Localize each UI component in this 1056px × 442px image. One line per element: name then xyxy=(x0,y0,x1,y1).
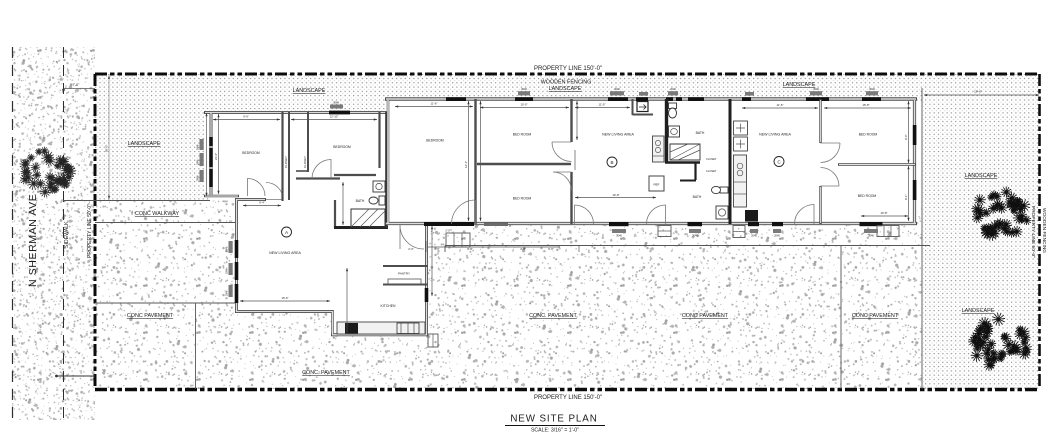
svg-text:BEDROOM: BEDROOM xyxy=(242,151,260,155)
svg-text:BEDROOM: BEDROOM xyxy=(333,145,351,149)
svg-text:2040: 2040 xyxy=(670,87,676,91)
svg-text:LANDSCAPE: LANDSCAPE xyxy=(293,88,326,94)
svg-text:3046: 3046 xyxy=(197,144,200,150)
svg-text:3046: 3046 xyxy=(226,290,229,296)
svg-text:6'-4": 6'-4" xyxy=(259,201,265,205)
svg-text:7'-0": 7'-0" xyxy=(73,83,81,87)
svg-text:CONC WALKWAY: CONC WALKWAY xyxy=(135,211,180,217)
svg-text:CONC PAVEMENT: CONC PAVEMENT xyxy=(682,313,729,319)
svg-text:LANDSCAPE: LANDSCAPE xyxy=(965,173,998,179)
svg-text:16'-8": 16'-8" xyxy=(880,211,887,215)
svg-text:3046: 3046 xyxy=(692,234,698,238)
svg-text:BATH: BATH xyxy=(356,199,365,203)
svg-text:11'-5": 11'-5" xyxy=(777,103,784,107)
svg-text:3046: 3046 xyxy=(869,87,875,91)
svg-text:2'-0": 2'-0" xyxy=(445,229,450,233)
svg-text:CONC. PAVEMENT: CONC. PAVEMENT xyxy=(302,370,350,376)
svg-text:NEW LIVING AREA: NEW LIVING AREA xyxy=(269,251,301,255)
svg-text:PROPERTY LINE 50'-0": PROPERTY LINE 50'-0" xyxy=(1030,206,1036,258)
svg-text:11'-6": 11'-6" xyxy=(431,102,438,106)
svg-text:11'-5": 11'-5" xyxy=(599,103,606,107)
svg-text:CONC PAVEMENT: CONC PAVEMENT xyxy=(127,313,174,319)
svg-text:21'-6": 21'-6" xyxy=(214,153,218,160)
svg-text:WOODEN FENCING: WOODEN FENCING xyxy=(1041,208,1047,253)
svg-text:3046: 3046 xyxy=(197,159,200,165)
svg-text:3046: 3046 xyxy=(614,87,620,91)
svg-text:9'-0": 9'-0" xyxy=(904,134,908,140)
svg-text:BED ROOM: BED ROOM xyxy=(513,133,532,137)
svg-text:N SHERMAN AVE: N SHERMAN AVE xyxy=(27,194,39,287)
svg-text:10'-0": 10'-0" xyxy=(520,103,527,107)
svg-text:LANDSCAPE: LANDSCAPE xyxy=(783,82,816,88)
svg-text:LANDSCAPE: LANDSCAPE xyxy=(549,86,582,92)
svg-text:15'-8": 15'-8" xyxy=(862,103,869,107)
svg-text:BED ROOM: BED ROOM xyxy=(513,197,532,201)
svg-text:2040: 2040 xyxy=(751,234,757,238)
svg-text:3046: 3046 xyxy=(616,234,622,238)
svg-text:3046: 3046 xyxy=(226,246,229,252)
svg-text:2'-0": 2'-0" xyxy=(408,247,414,251)
svg-text:SCALE: 3/16" = 1'-0": SCALE: 3/16" = 1'-0" xyxy=(531,428,579,434)
svg-text:19'-6": 19'-6" xyxy=(974,90,982,94)
svg-text:NEW LIVING AREA: NEW LIVING AREA xyxy=(602,133,634,137)
svg-text:5'-6": 5'-6" xyxy=(548,247,554,251)
svg-text:9'-1": 9'-1" xyxy=(904,194,908,200)
svg-text:LANDSCAPE: LANDSCAPE xyxy=(128,141,161,147)
svg-text:BATH: BATH xyxy=(696,131,705,135)
svg-text:3'-0": 3'-0" xyxy=(520,247,526,251)
svg-text:NEW LIVING AREA: NEW LIVING AREA xyxy=(759,133,791,137)
svg-text:3046: 3046 xyxy=(226,268,229,274)
svg-text:SIDEWALK: SIDEWALK xyxy=(64,221,70,248)
svg-text:PROPERTY LINE 150'-0": PROPERTY LINE 150'-0" xyxy=(534,66,602,72)
svg-text:PROPERTY LINE 150'-0": PROPERTY LINE 150'-0" xyxy=(534,395,602,401)
svg-text:3046: 3046 xyxy=(868,234,874,238)
svg-text:16'-8": 16'-8" xyxy=(612,193,619,197)
svg-text:3046: 3046 xyxy=(521,87,527,91)
svg-text:CLOSET: CLOSET xyxy=(284,156,288,168)
svg-text:REF: REF xyxy=(654,183,660,187)
svg-text:PANTRY: PANTRY xyxy=(398,272,410,276)
svg-text:B: B xyxy=(610,160,613,165)
svg-text:WOODEN FENCING: WOODEN FENCING xyxy=(541,80,592,86)
svg-text:2040: 2040 xyxy=(774,234,780,238)
svg-text:CLOSET: CLOSET xyxy=(303,156,307,168)
svg-text:3046: 3046 xyxy=(333,100,339,104)
svg-text:9'-6": 9'-6" xyxy=(243,115,249,119)
svg-text:3046: 3046 xyxy=(813,87,819,91)
svg-text:50'-0": 50'-0" xyxy=(105,145,109,152)
svg-text:12'-10": 12'-10" xyxy=(330,115,339,119)
svg-text:2'-6": 2'-6" xyxy=(434,247,439,251)
svg-text:CLOSET: CLOSET xyxy=(706,157,717,161)
svg-text:BED ROOM: BED ROOM xyxy=(859,133,878,137)
svg-text:15'-6": 15'-6" xyxy=(281,296,288,300)
svg-text:PROPERTY LINE 50'-0": PROPERTY LINE 50'-0" xyxy=(87,204,93,258)
svg-text:CONC. PAVEMENT: CONC. PAVEMENT xyxy=(529,313,577,319)
svg-text:BED ROOM: BED ROOM xyxy=(858,194,877,198)
svg-text:KITCHEN: KITCHEN xyxy=(381,304,396,308)
svg-text:BEDROOM: BEDROOM xyxy=(426,139,444,143)
svg-text:NEW SITE PLAN: NEW SITE PLAN xyxy=(510,414,597,425)
svg-text:CLOSET: CLOSET xyxy=(706,169,717,173)
svg-text:CONC PAVEMENT: CONC PAVEMENT xyxy=(852,313,899,319)
svg-text:LANDSCAPE: LANDSCAPE xyxy=(962,308,995,314)
svg-text:3046: 3046 xyxy=(197,175,200,181)
svg-text:BATH: BATH xyxy=(693,195,702,199)
svg-text:8'-6": 8'-6" xyxy=(467,247,473,251)
svg-text:14'-1": 14'-1" xyxy=(464,161,468,168)
